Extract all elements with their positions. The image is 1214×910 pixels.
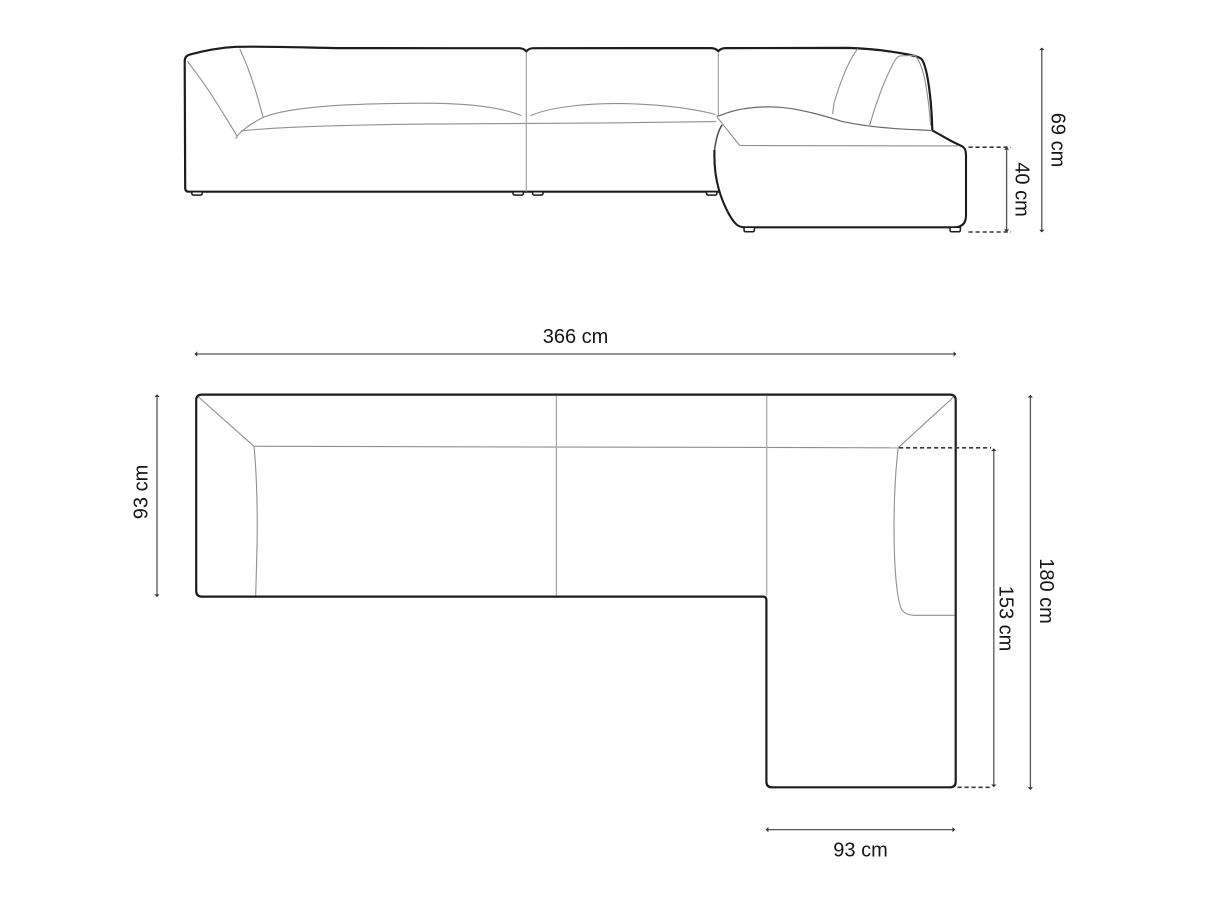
svg-text:180 cm: 180 cm bbox=[1035, 558, 1057, 624]
svg-text:366 cm: 366 cm bbox=[543, 326, 609, 348]
svg-text:40 cm: 40 cm bbox=[1011, 162, 1033, 216]
svg-text:69 cm: 69 cm bbox=[1047, 113, 1069, 167]
svg-text:93 cm: 93 cm bbox=[833, 840, 887, 862]
svg-text:153 cm: 153 cm bbox=[995, 586, 1017, 652]
svg-text:93 cm: 93 cm bbox=[131, 465, 153, 519]
